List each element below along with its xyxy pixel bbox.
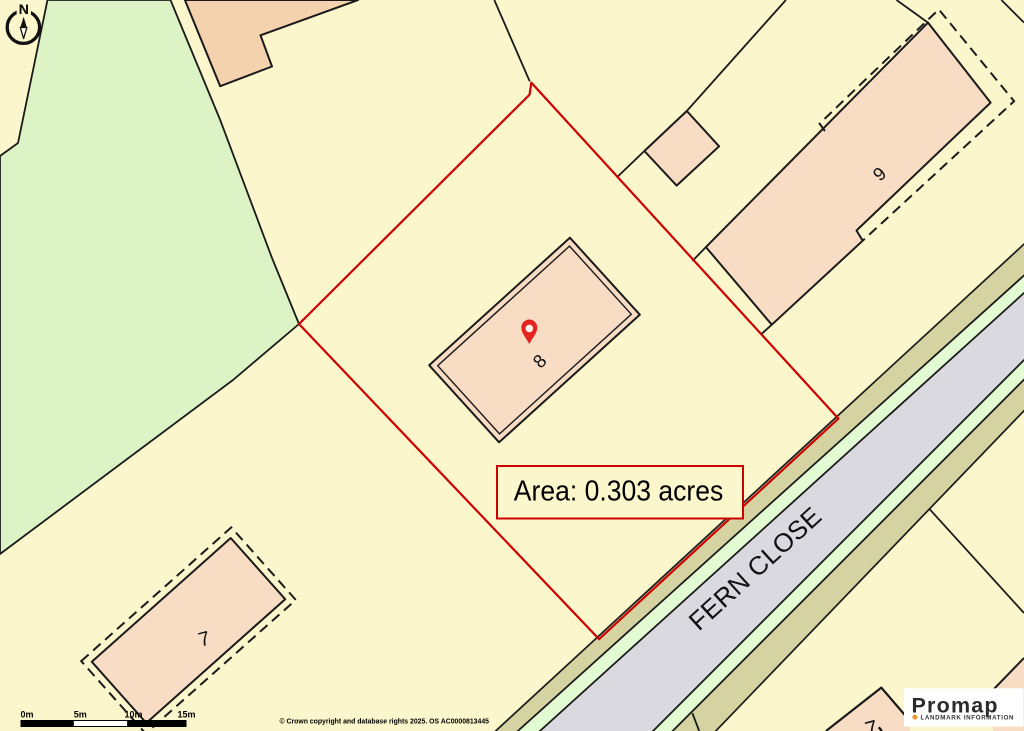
svg-text:© Crown copyright and database: © Crown copyright and database rights 20… bbox=[280, 717, 490, 726]
svg-text:5m: 5m bbox=[74, 710, 87, 720]
svg-text:N: N bbox=[19, 1, 29, 17]
svg-text:0m: 0m bbox=[21, 710, 34, 720]
svg-text:LANDMARK INFORMATION: LANDMARK INFORMATION bbox=[921, 715, 1015, 722]
svg-text:10m: 10m bbox=[125, 710, 143, 720]
svg-text:15m: 15m bbox=[178, 710, 196, 720]
svg-text:Area: 0.303 acres: Area: 0.303 acres bbox=[514, 476, 724, 508]
